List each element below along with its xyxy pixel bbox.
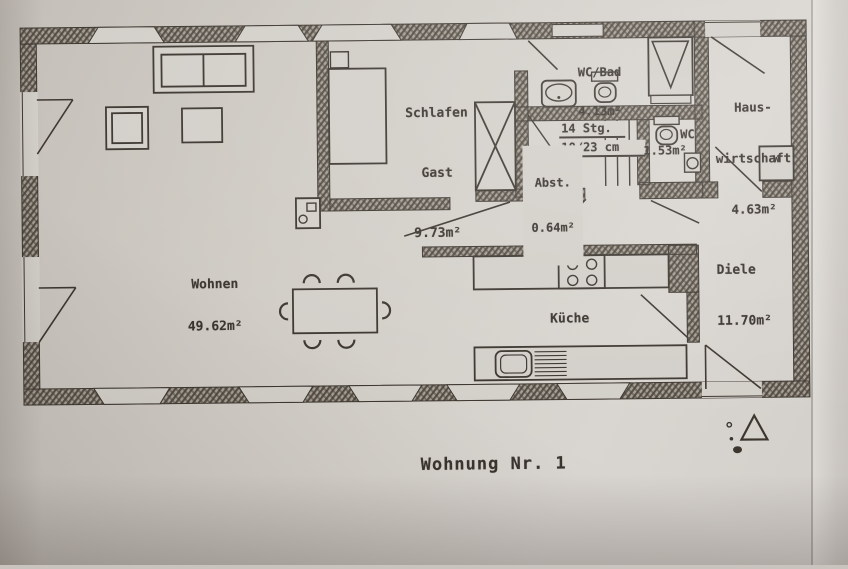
room-label-wohnen: Wohnen 49.62m² — [168, 250, 261, 363]
kitchen-counter-lower — [474, 345, 686, 380]
north-marker — [727, 415, 768, 453]
washing-machine-label: W — [759, 154, 793, 165]
sink — [495, 351, 531, 377]
window — [447, 384, 520, 401]
dining-table-set — [280, 274, 391, 348]
bed — [328, 51, 386, 164]
window — [312, 24, 401, 41]
stairs-label-count: 14 Stg. — [559, 121, 625, 139]
toilet-wc — [654, 116, 679, 144]
room-label-schlafen-gast: Schlafen Gast 9.73m² — [388, 63, 485, 284]
window — [88, 27, 164, 44]
fireplace-stove — [296, 198, 320, 228]
room-area-wc: 1.53m² — [643, 143, 687, 157]
window — [557, 383, 630, 400]
room-label-wc: WC — [680, 127, 695, 141]
window — [349, 385, 422, 402]
room-label-abstellraum: Abst. 0.64m² — [522, 145, 583, 266]
floorplan-container: Schlafen Gast 9.73m² WC/Bad 4.13m² Haus-… — [0, 0, 848, 569]
room-label-kueche: Küche — [550, 311, 589, 326]
window — [239, 386, 313, 403]
paper-edge-highlight — [813, 0, 848, 565]
water-heater — [684, 153, 700, 172]
window — [235, 25, 308, 42]
window — [552, 24, 603, 37]
window — [94, 388, 170, 405]
window — [459, 23, 517, 40]
side-table-2 — [182, 108, 222, 142]
plan-caption: Wohnung Nr. 1 — [421, 453, 567, 475]
room-label-diele: Diele 11.70m² — [716, 227, 772, 364]
sofa — [153, 46, 253, 93]
shower — [648, 37, 693, 103]
side-table-1 — [106, 107, 148, 149]
